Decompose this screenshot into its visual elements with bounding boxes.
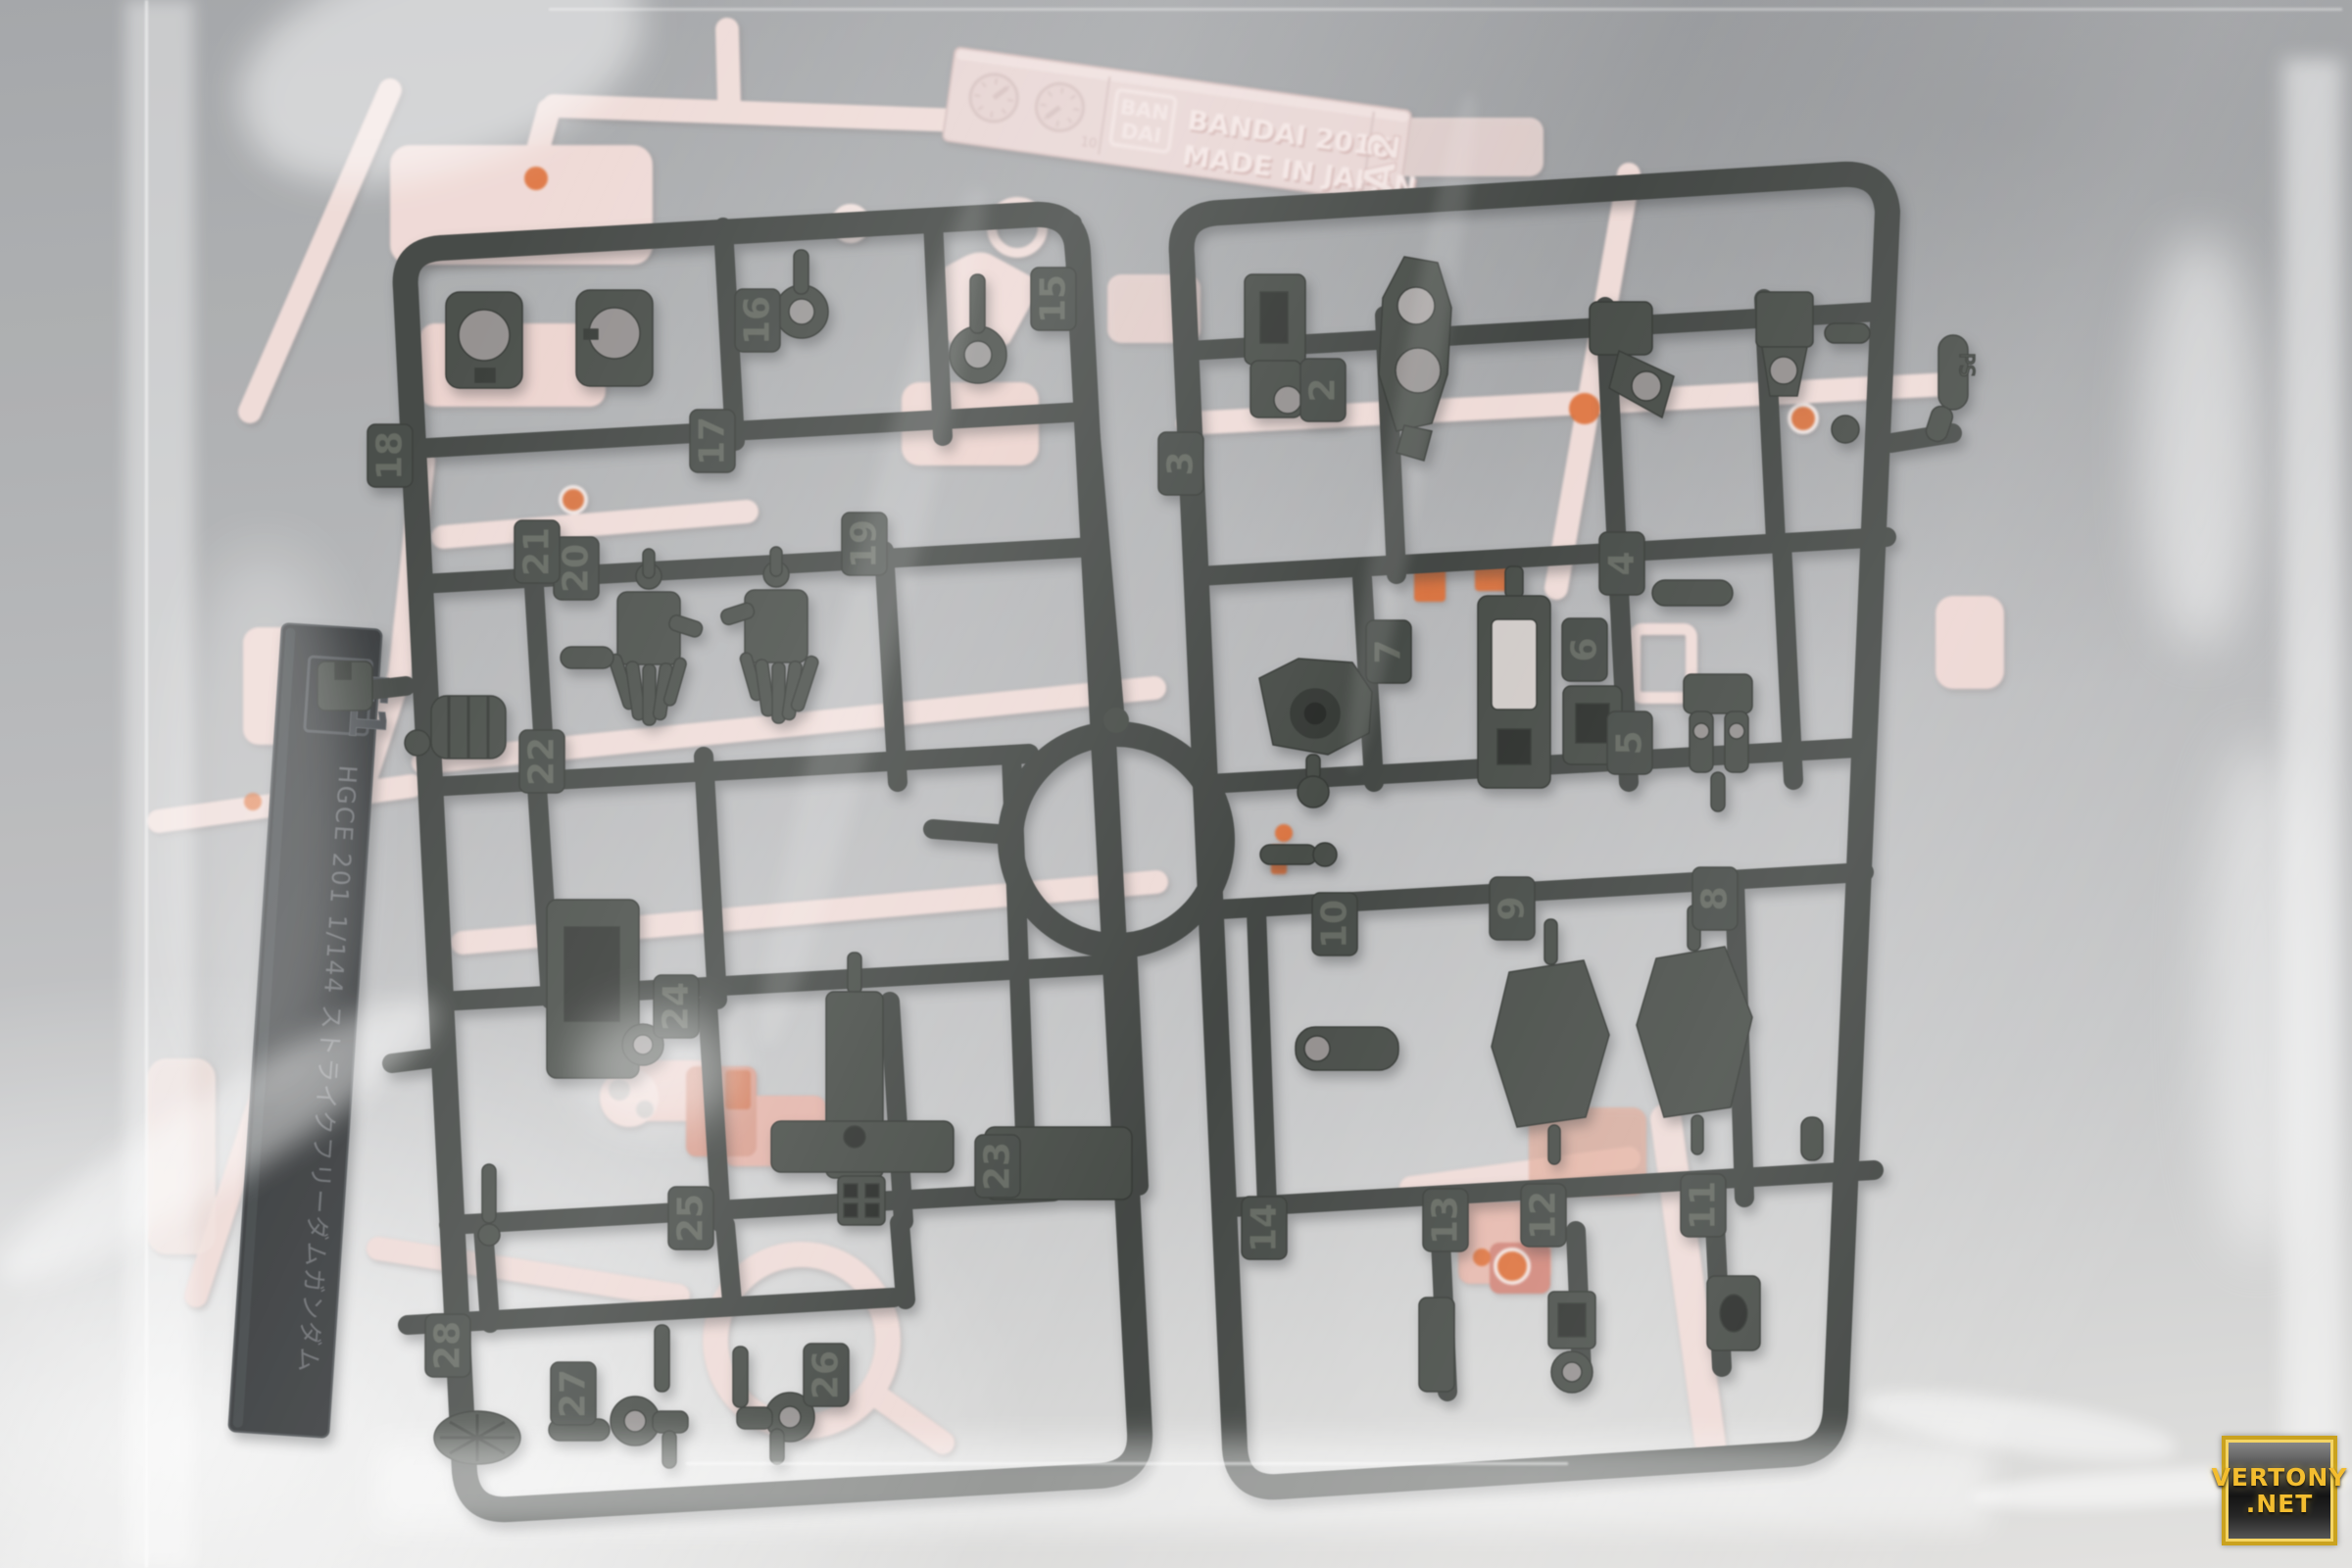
bag-haze <box>0 0 2352 1568</box>
watermark-badge: VERTONY .NET <box>2222 1436 2337 1545</box>
gunpla-runner-photo: 10 BAN DAI BANDAI 2016 BANDAI 2016 MADE … <box>0 0 2352 1568</box>
watermark-line2: .NET <box>2246 1491 2314 1517</box>
watermark-line1: VERTONY <box>2212 1464 2348 1491</box>
